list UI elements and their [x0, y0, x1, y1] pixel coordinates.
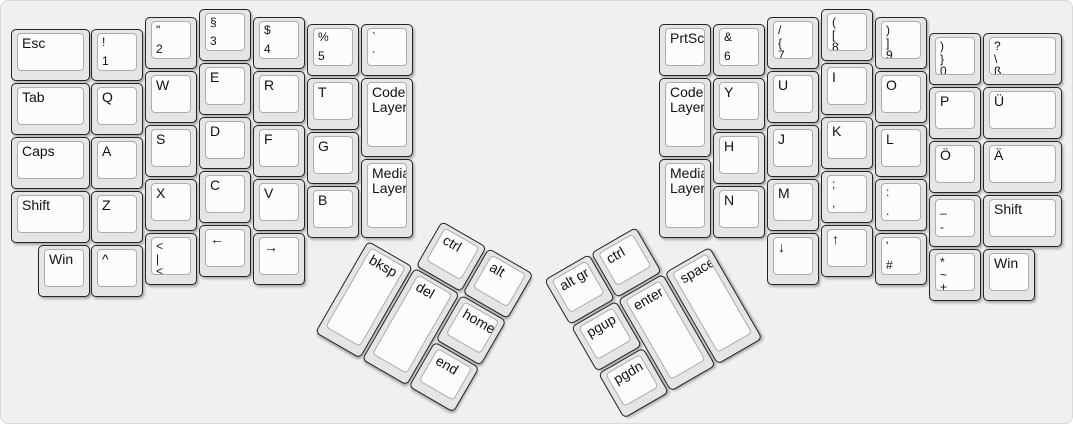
key-legend: 9	[886, 49, 919, 59]
key-num6[interactable]: &6	[713, 24, 765, 76]
keycap-top: alt	[473, 254, 527, 307]
key-num7[interactable]: /{7	[767, 17, 819, 69]
key-tab[interactable]: Tab	[11, 83, 90, 135]
keycap-top: Y	[719, 82, 759, 120]
key-p[interactable]: P	[929, 87, 981, 139]
key-d[interactable]: D	[199, 117, 251, 169]
key-n[interactable]: N	[713, 186, 765, 238]
keycap-top: :.	[881, 183, 921, 221]
keycap-top: )}0	[935, 37, 975, 75]
key-legend: U	[778, 78, 811, 93]
key-num2[interactable]: "2	[145, 17, 197, 69]
key-a[interactable]: A	[91, 137, 143, 189]
key-legend: I	[832, 70, 865, 85]
key-legend: (	[832, 16, 865, 29]
key-angle-pipe[interactable]: <|<	[145, 233, 197, 285]
key-legend: 1	[102, 55, 135, 68]
key-legend: enter	[631, 284, 667, 313]
keycap-top: Caps	[17, 141, 84, 179]
key-media-layer-left[interactable]: Media Layer	[361, 159, 413, 238]
key-question-sz[interactable]: ?\ß	[983, 33, 1062, 85]
key-legend: pgdn	[611, 358, 647, 387]
key-legend: Ü	[994, 94, 1054, 109]
keycap-top: Esc	[17, 33, 84, 71]
key-u-umlaut[interactable]: Ü	[983, 87, 1062, 139]
keycap-top: E	[205, 67, 245, 105]
key-legend: space	[678, 257, 714, 286]
keycap-top: /{7	[773, 21, 813, 59]
key-h[interactable]: H	[713, 132, 765, 184]
keycap-top: →	[259, 237, 299, 275]
keycap-top: ?\ß	[989, 37, 1056, 75]
key-legend: 8	[832, 41, 865, 51]
key-legend: K	[832, 124, 865, 139]
key-legend: F	[264, 132, 297, 147]
key-shift-left[interactable]: Shift	[11, 191, 90, 243]
keycap-top: _-	[935, 199, 975, 237]
key-x[interactable]: X	[145, 179, 197, 231]
key-legend: bksp	[367, 252, 403, 281]
key-legend: Win	[49, 252, 82, 267]
key-win-right[interactable]: Win	[983, 249, 1035, 301]
key-legend: +	[940, 281, 973, 291]
key-legend: PrtScr	[670, 31, 703, 46]
key-legend: %	[318, 31, 351, 44]
keycap-top: I	[827, 67, 867, 105]
key-arrow-down[interactable]: ↓	[767, 233, 819, 285]
key-legend: '	[886, 240, 919, 253]
keycap-top: $4	[259, 21, 299, 59]
keycap-top: R	[259, 75, 299, 113]
key-legend: H	[724, 139, 757, 154]
keycap-top: alt gr	[551, 260, 605, 313]
keycap-top: Code Layer	[665, 82, 705, 147]
keycap-top: )]9	[881, 21, 921, 59]
key-m[interactable]: M	[767, 179, 819, 231]
key-legend: L	[886, 132, 919, 147]
key-c[interactable]: C	[199, 171, 251, 223]
key-legend: :	[886, 186, 919, 199]
keycap-top: Ü	[989, 91, 1056, 129]
key-legend: ←	[210, 232, 243, 247]
key-legend: ?	[994, 40, 1054, 53]
keycap-top: G	[313, 136, 353, 174]
key-legend: Q	[102, 90, 135, 105]
key-legend: Media Layer	[670, 166, 703, 195]
key-s[interactable]: S	[145, 125, 197, 177]
key-win-left[interactable]: Win	[38, 245, 90, 297]
key-prtscr[interactable]: PrtScr	[659, 24, 711, 76]
key-legend: Code Layer	[372, 85, 405, 114]
keycap-top: Win	[989, 253, 1029, 291]
key-legend: pgup	[584, 311, 620, 340]
key-legend: )	[886, 24, 919, 37]
key-quote-hash[interactable]: '#	[875, 233, 927, 285]
keycap-top: D	[205, 121, 245, 159]
key-arrow-up[interactable]: ↑	[821, 225, 873, 277]
key-i[interactable]: I	[821, 63, 873, 115]
keycap-top: C	[205, 175, 245, 213]
keycap-top: ↓	[773, 237, 813, 275]
keycap-top: Media Layer	[367, 163, 407, 228]
key-legend: O	[886, 78, 919, 93]
keycap-top: ^	[97, 249, 137, 287]
key-t[interactable]: T	[307, 78, 359, 130]
key-legend: M	[778, 186, 811, 201]
keycap-top: ↑	[827, 229, 867, 267]
key-legend: Ä	[994, 148, 1054, 163]
key-legend: Shift	[994, 202, 1054, 217]
keycap-top: B	[313, 190, 353, 228]
key-z[interactable]: Z	[91, 191, 143, 243]
key-a-umlaut[interactable]: Ä	[983, 141, 1062, 193]
key-legend: 3	[210, 35, 243, 48]
keycap-top: &6	[719, 28, 759, 66]
key-legend: C	[210, 178, 243, 193]
key-num9[interactable]: )]9	[875, 17, 927, 69]
key-legend: S	[156, 132, 189, 147]
keycap-top: P	[935, 91, 975, 129]
key-legend: del	[413, 279, 449, 308]
keycap-top: %5	[313, 28, 353, 66]
key-legend: end	[433, 353, 469, 382]
key-legend: )	[940, 40, 973, 53]
keyboard-canvas: EscTabCapsShiftWin!1QAZ^"2WSX<|<§3EDC←$4…	[0, 0, 1073, 424]
key-o[interactable]: O	[875, 71, 927, 123]
key-caret[interactable]: ^	[91, 245, 143, 297]
key-num3[interactable]: §3	[199, 9, 251, 61]
key-colon[interactable]: :.	[875, 179, 927, 231]
key-legend: ß	[994, 65, 1054, 75]
keycap-top: Media Layer	[665, 163, 705, 228]
keycap-top: '#	[881, 237, 921, 275]
keycap-top: ctrl	[598, 233, 652, 286]
keycap-top: H	[719, 136, 759, 174]
keycap-top: ctrl	[426, 227, 480, 280]
key-f[interactable]: F	[253, 125, 305, 177]
key-legend: _	[940, 202, 973, 215]
key-legend: Caps	[22, 144, 82, 159]
keycap-top: Q	[97, 87, 137, 125]
key-legend: Esc	[22, 36, 82, 51]
key-legend: Z	[102, 198, 135, 213]
key-legend: X	[156, 186, 189, 201]
key-legend: J	[778, 132, 811, 147]
keycap-top: W	[151, 75, 191, 113]
keycap-top: *~+	[935, 253, 975, 291]
key-legend: \	[994, 53, 1054, 66]
key-legend: ;	[832, 178, 865, 191]
key-q[interactable]: Q	[91, 83, 143, 135]
key-legend: $	[264, 24, 297, 37]
key-legend: G	[318, 139, 351, 154]
key-legend: Ö	[940, 148, 973, 163]
keycap-top: S	[151, 129, 191, 167]
key-legend: ´	[372, 50, 405, 63]
keycap-top: M	[773, 183, 813, 221]
key-legend: →	[264, 240, 297, 255]
key-legend: 2	[156, 43, 189, 56]
key-legend: N	[724, 193, 757, 208]
keycap-top: `´	[367, 28, 407, 66]
key-l[interactable]: L	[875, 125, 927, 177]
keycap-top: N	[719, 190, 759, 228]
key-e[interactable]: E	[199, 63, 251, 115]
key-legend: .	[886, 205, 919, 218]
key-legend: "	[156, 24, 189, 37]
key-legend: ctrl	[440, 233, 476, 262]
key-num1[interactable]: !1	[91, 29, 143, 81]
key-esc[interactable]: Esc	[11, 29, 90, 81]
key-legend: V	[264, 186, 297, 201]
key-legend: R	[264, 78, 297, 93]
key-g[interactable]: G	[307, 132, 359, 184]
key-num8[interactable]: ([8	[821, 9, 873, 61]
keycap-top: X	[151, 183, 191, 221]
key-b[interactable]: B	[307, 186, 359, 238]
key-legend: D	[210, 124, 243, 139]
keycap-top: V	[259, 183, 299, 221]
keycap-top: !1	[97, 33, 137, 71]
key-legend: !	[102, 36, 135, 49]
key-legend: 0	[940, 65, 973, 75]
key-legend: B	[318, 193, 351, 208]
keycap-top: T	[313, 82, 353, 120]
keycap-top: U	[773, 75, 813, 113]
key-legend: T	[318, 85, 351, 100]
keycap-top: PrtScr	[665, 28, 705, 66]
keycap-top: ←	[205, 229, 245, 267]
key-legend: 6	[724, 50, 757, 63]
key-grave-acute[interactable]: `´	[361, 24, 413, 76]
key-legend: Tab	[22, 90, 82, 105]
key-w[interactable]: W	[145, 71, 197, 123]
keycap-top: F	[259, 129, 299, 167]
key-legend: #	[886, 259, 919, 272]
key-arrow-right[interactable]: →	[253, 233, 305, 285]
key-media-layer-right[interactable]: Media Layer	[659, 159, 711, 238]
key-o-umlaut[interactable]: Ö	[929, 141, 981, 193]
key-legend: §	[210, 16, 243, 29]
key-legend: `	[372, 31, 405, 44]
key-legend: E	[210, 70, 243, 85]
key-u[interactable]: U	[767, 71, 819, 123]
key-legend: alt gr	[557, 264, 593, 293]
key-legend: Shift	[22, 198, 82, 213]
key-legend: W	[156, 78, 189, 93]
keycap-top: <|<	[151, 237, 191, 275]
key-legend: Media Layer	[372, 166, 405, 195]
key-underscore[interactable]: _-	[929, 195, 981, 247]
key-legend: -	[940, 221, 973, 234]
key-j[interactable]: J	[767, 125, 819, 177]
key-legend: <	[156, 240, 189, 253]
key-legend: P	[940, 94, 973, 109]
key-legend: ↑	[832, 232, 865, 247]
key-legend: 7	[778, 49, 811, 59]
key-legend: Code Layer	[670, 85, 703, 114]
key-legend: alt	[487, 260, 523, 289]
key-legend: ctrl	[604, 237, 640, 266]
key-v[interactable]: V	[253, 179, 305, 231]
key-legend: ,	[832, 197, 865, 210]
key-legend: A	[102, 144, 135, 159]
keycap-top: §3	[205, 13, 245, 51]
keycap-top: Ä	[989, 145, 1056, 183]
key-y[interactable]: Y	[713, 78, 765, 130]
key-legend: *	[940, 256, 973, 269]
keycap-top: Ö	[935, 145, 975, 183]
keycap-top: L	[881, 129, 921, 167]
keycap-top: Shift	[17, 195, 84, 233]
keycap-top: O	[881, 75, 921, 113]
keycap-top: J	[773, 129, 813, 167]
key-asterisk-plus[interactable]: *~+	[929, 249, 981, 301]
key-num4[interactable]: $4	[253, 17, 305, 69]
key-num5[interactable]: %5	[307, 24, 359, 76]
key-legend: ↓	[778, 240, 811, 255]
keycap-top: Z	[97, 195, 137, 233]
key-legend: ^	[102, 252, 135, 267]
key-legend: Win	[994, 256, 1027, 271]
keycap-top: Shift	[989, 199, 1056, 237]
key-legend: home	[460, 306, 496, 335]
key-r[interactable]: R	[253, 71, 305, 123]
keycap-top: "2	[151, 21, 191, 59]
key-code-layer-right[interactable]: Code Layer	[659, 78, 711, 157]
key-shift-right[interactable]: Shift	[983, 195, 1062, 247]
key-legend: <	[156, 265, 189, 275]
key-k[interactable]: K	[821, 117, 873, 169]
keycap-top: Code Layer	[367, 82, 407, 147]
keycap-top: Tab	[17, 87, 84, 125]
key-legend: 5	[318, 50, 351, 63]
key-code-layer-left[interactable]: Code Layer	[361, 78, 413, 157]
key-arrow-left[interactable]: ←	[199, 225, 251, 277]
key-legend: 4	[264, 43, 297, 56]
keycap-top: K	[827, 121, 867, 159]
keycap-top: ([8	[827, 13, 867, 51]
key-legend: &	[724, 31, 757, 44]
keycap-top: A	[97, 141, 137, 179]
key-num0[interactable]: )}0	[929, 33, 981, 85]
key-legend: /	[778, 24, 811, 37]
key-legend: Y	[724, 85, 757, 100]
key-caps[interactable]: Caps	[11, 137, 90, 189]
keycap-top: ;,	[827, 175, 867, 213]
key-semicolon[interactable]: ;,	[821, 171, 873, 223]
keycap-top: Win	[44, 249, 84, 287]
